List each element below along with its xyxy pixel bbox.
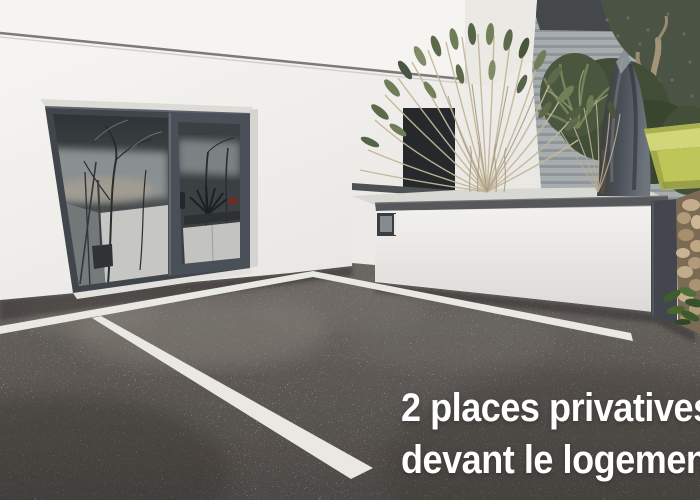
caption-line-1: 2 places privatives xyxy=(401,382,700,434)
listing-photo: 2 places privatives devant le logement xyxy=(0,0,700,500)
planter-end-post xyxy=(651,199,677,325)
sliding-glass-door xyxy=(40,99,258,299)
intercom-box xyxy=(377,213,396,236)
caption-overlay: 2 places privatives devant le logement xyxy=(401,382,700,486)
door-handle xyxy=(180,192,185,209)
caption-line-2: devant le logement xyxy=(401,434,700,486)
